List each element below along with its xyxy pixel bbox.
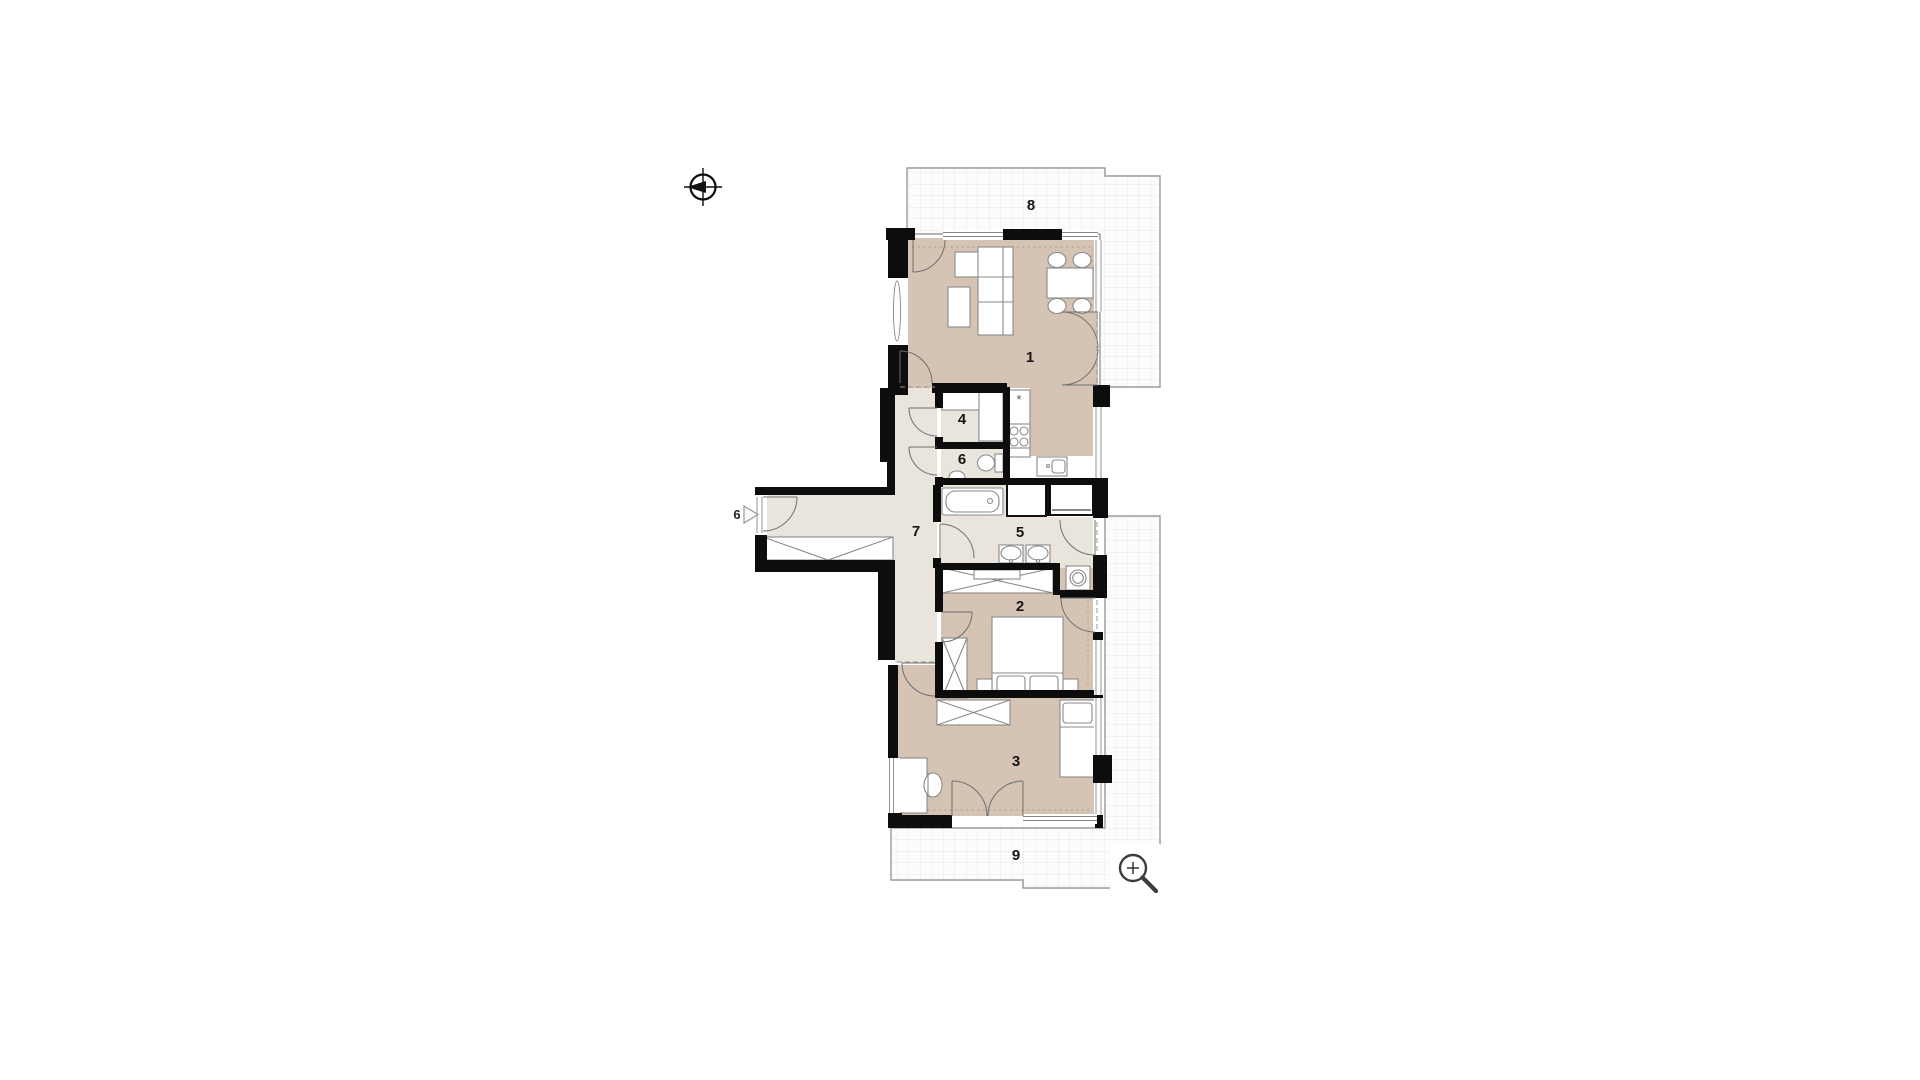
- living-room-top-window-2: [1062, 230, 1098, 240]
- bathtub: [942, 488, 1003, 515]
- bedroom-wardrobe-top: [942, 568, 1053, 593]
- label-bedroom: 2: [1016, 598, 1024, 615]
- toilet: [978, 454, 1004, 472]
- floor-plan-drawing: 1 2 3 4 5 6 7 8 9 * 6: [0, 0, 1920, 1080]
- bedroom-wardrobe-left: [942, 638, 967, 698]
- north-arrow-icon: [684, 168, 722, 206]
- dining-table: [1047, 268, 1093, 298]
- bedroom2-wardrobe: [937, 700, 1010, 725]
- stove-symbol: *: [1016, 392, 1021, 407]
- label-living-room: 1: [1026, 349, 1034, 366]
- label-hallway: 7: [912, 523, 920, 540]
- double-bed: [992, 617, 1063, 697]
- single-bed: [1060, 700, 1095, 777]
- kitchen-floor: [1030, 388, 1093, 456]
- label-storage: 4: [958, 411, 967, 428]
- label-bathroom: 5: [1016, 524, 1024, 541]
- washing-machine: [1066, 566, 1090, 590]
- bedroom-window: [1094, 640, 1103, 695]
- living-room-top-window: [943, 230, 1003, 240]
- kitchen-window: [1094, 407, 1103, 478]
- hallway-wardrobe: [763, 537, 893, 560]
- bedroom2-bottom-window: [1023, 814, 1097, 824]
- entrance-unit-number: 6: [733, 507, 740, 522]
- label-wc: 6: [958, 451, 966, 468]
- desk: [897, 758, 927, 813]
- coffee-table: [948, 287, 970, 327]
- bedroom2-right-window-upper: [1094, 698, 1103, 755]
- label-terrace-north: 8: [1027, 197, 1035, 214]
- zoom-in-button[interactable]: [1110, 843, 1162, 895]
- label-bedroom-2: 3: [1012, 753, 1020, 770]
- bedroom2-right-window-lower: [1094, 783, 1103, 815]
- floor-plan-page: 1 2 3 4 5 6 7 8 9 * 6: [0, 0, 1920, 1080]
- bedroom2-left-window: [887, 758, 900, 813]
- desk-chair: [924, 773, 942, 797]
- living-room-left-window: [888, 278, 908, 345]
- label-terrace-south: 9: [1012, 847, 1020, 864]
- living-room-right-window: [1094, 240, 1103, 312]
